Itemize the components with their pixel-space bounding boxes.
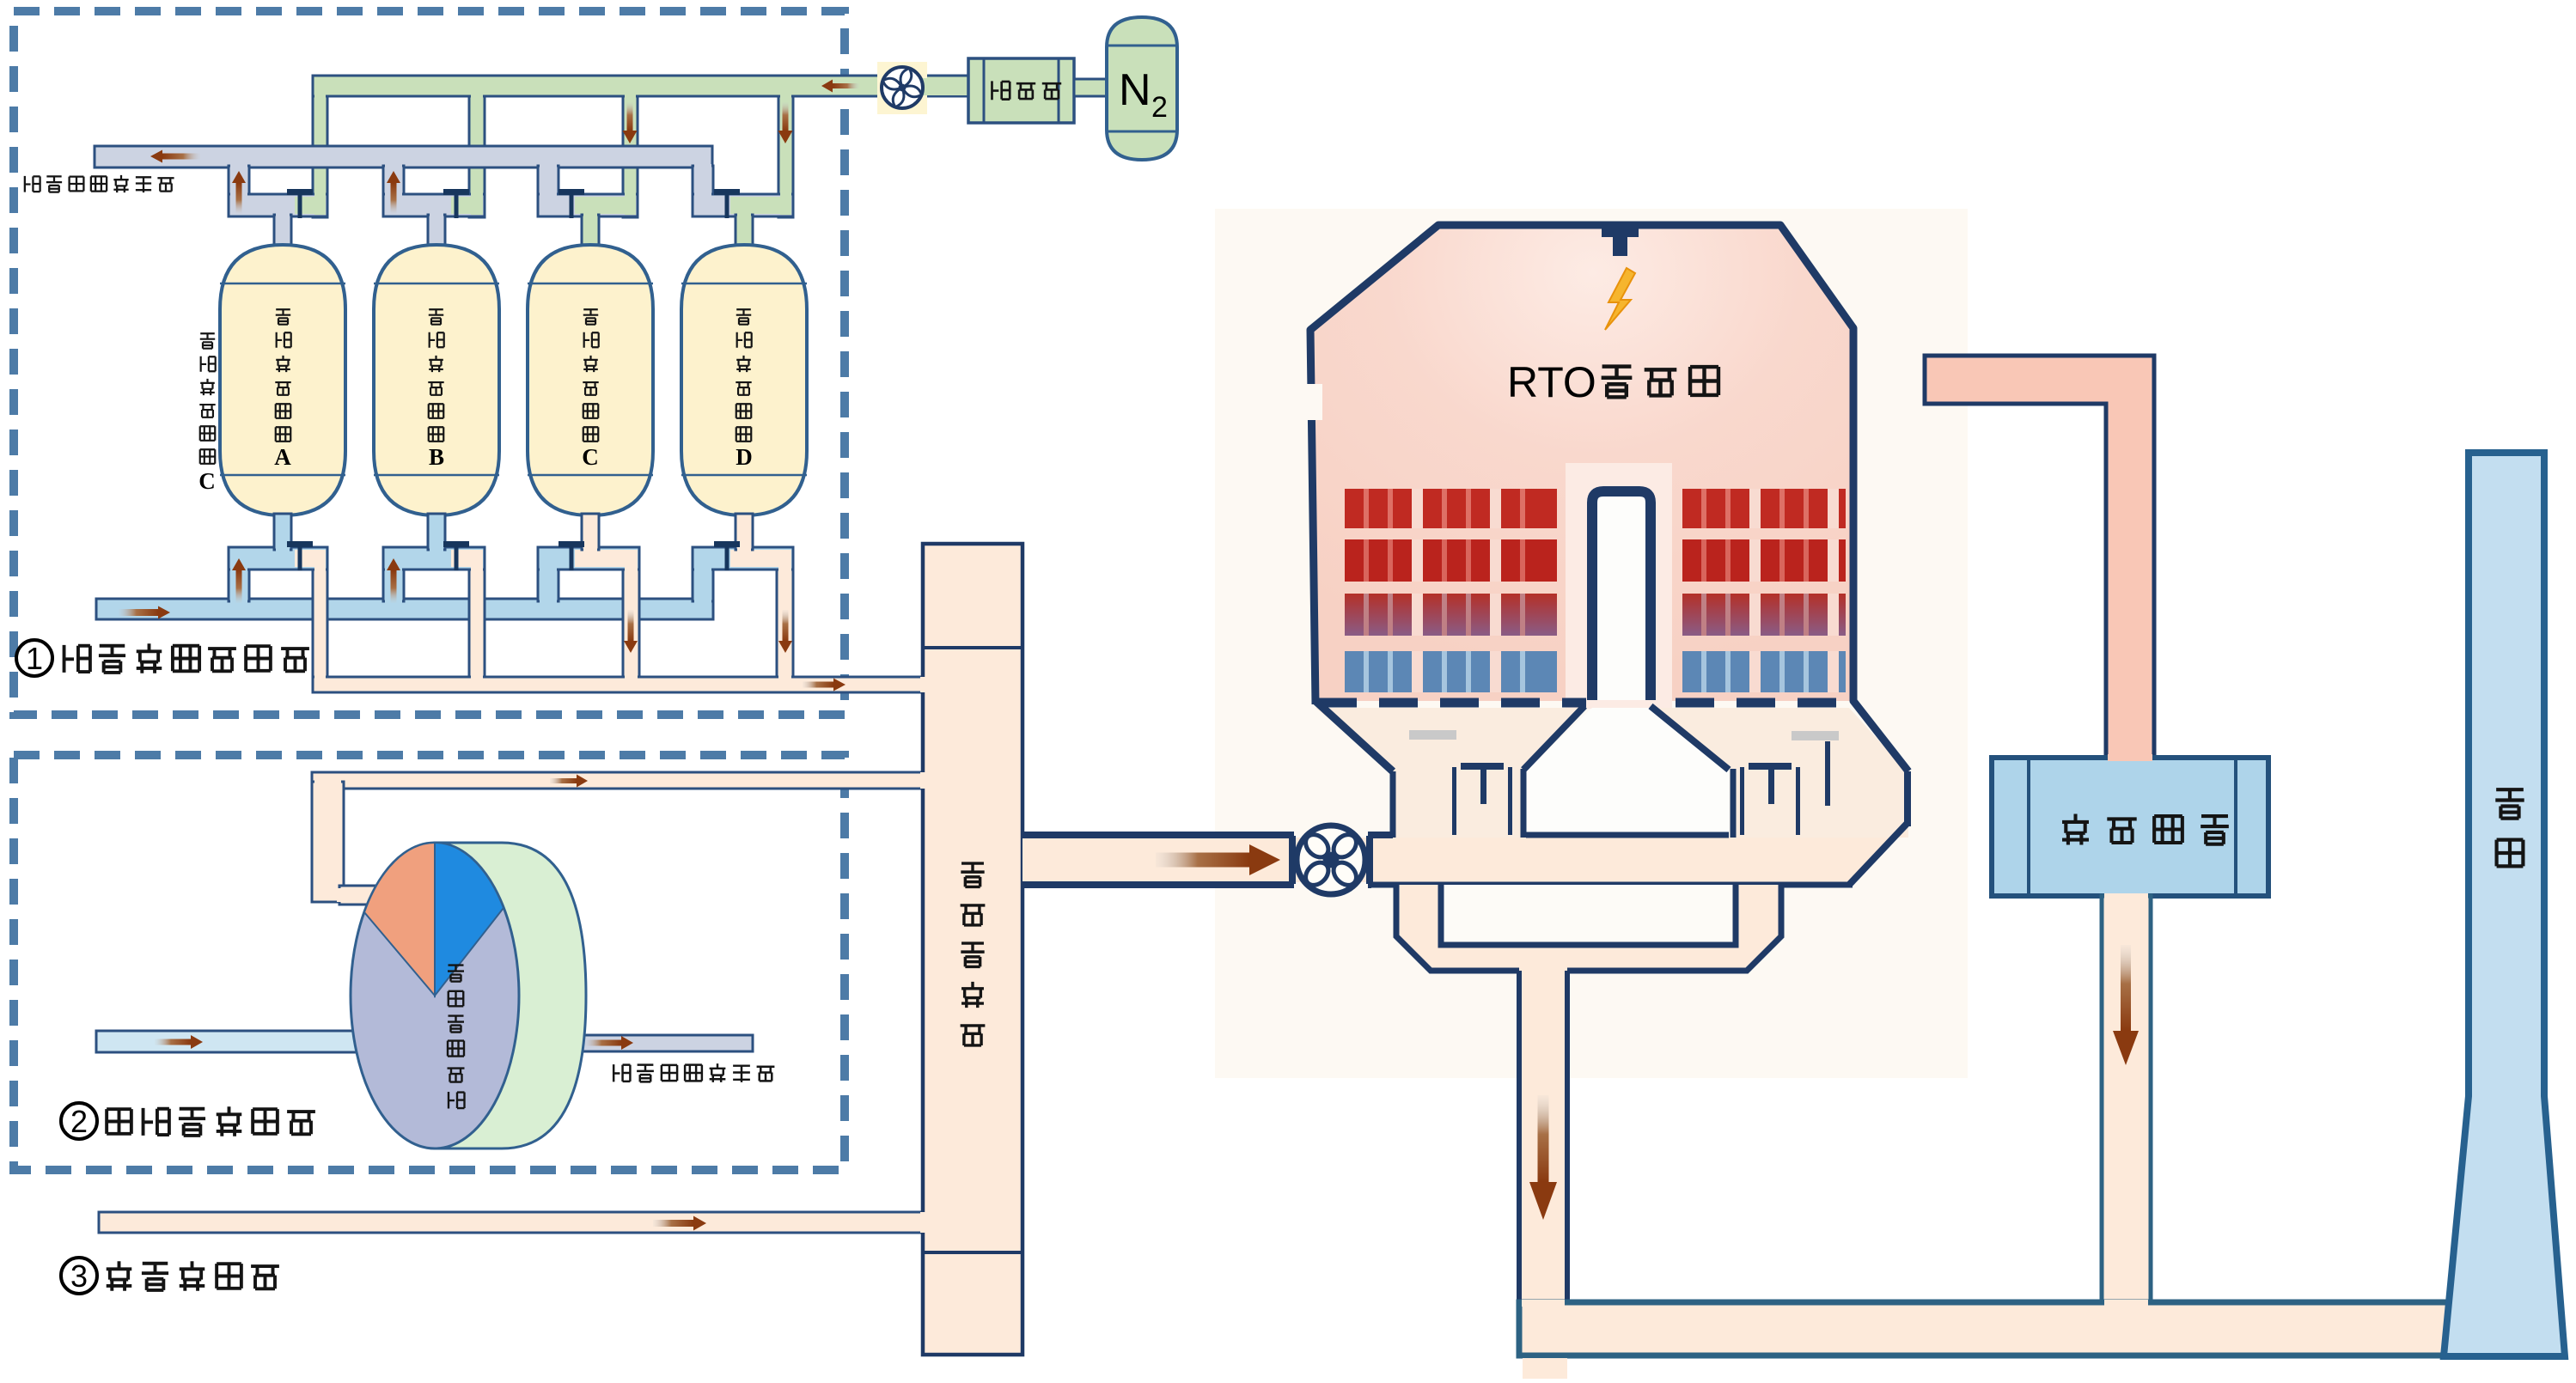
svg-text:2: 2	[70, 1104, 88, 1139]
svg-text:D: D	[736, 444, 753, 470]
svg-text:C: C	[198, 468, 216, 494]
svg-text:1: 1	[26, 641, 43, 676]
svg-text:2: 2	[1151, 91, 1168, 124]
svg-text:A: A	[274, 444, 291, 470]
svg-text:3: 3	[70, 1258, 88, 1294]
svg-text:N: N	[1119, 65, 1151, 115]
svg-text:B: B	[429, 444, 444, 470]
svg-text:RTO: RTO	[1507, 358, 1596, 406]
svg-text:C: C	[582, 444, 599, 470]
